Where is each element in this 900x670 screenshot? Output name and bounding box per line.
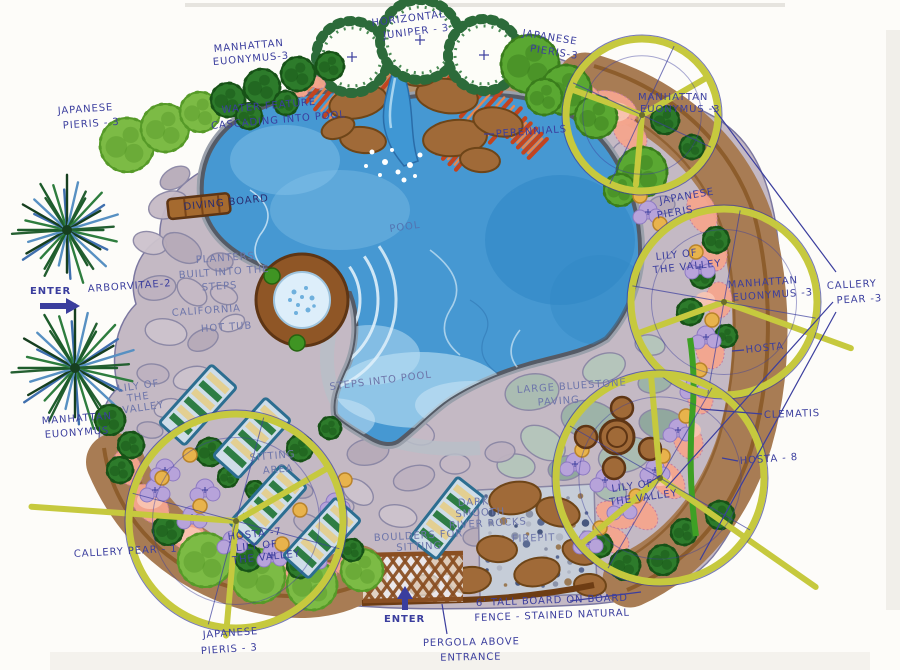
label-manhattan-euonymus-top-right: MANHATTANEUONYMUS -3 xyxy=(638,92,720,115)
hot-tub-plant xyxy=(289,335,305,351)
label-firepit: FIREPIT xyxy=(512,532,556,545)
landscape-plan-page: MANHATTANEUONYMUS-3 HORIZONTALJUNIPER - … xyxy=(0,0,900,670)
label-manhattan-euonymus-top: MANHATTANEUONYMUS-3 xyxy=(211,38,289,69)
landscape-plan-canvas: MANHATTANEUONYMUS-3 HORIZONTALJUNIPER - … xyxy=(0,0,900,670)
label-japanese-pieris-bottom: JAPANESEPIERIS - 3 xyxy=(199,626,259,657)
label-japanese-pieris-left: JAPANESEPIERIS - 3 xyxy=(56,102,120,132)
label-enter-bottom: ENTER xyxy=(384,614,425,625)
label-clematis: CLEMATIS xyxy=(764,408,821,421)
label-enter-left: ENTER xyxy=(30,286,71,297)
label-callery-pear-right: CALLERYPEAR -3 xyxy=(827,278,883,307)
label-manhattan-euonymus-bottom-left: MANHATTANEUONYMUS xyxy=(41,411,113,441)
